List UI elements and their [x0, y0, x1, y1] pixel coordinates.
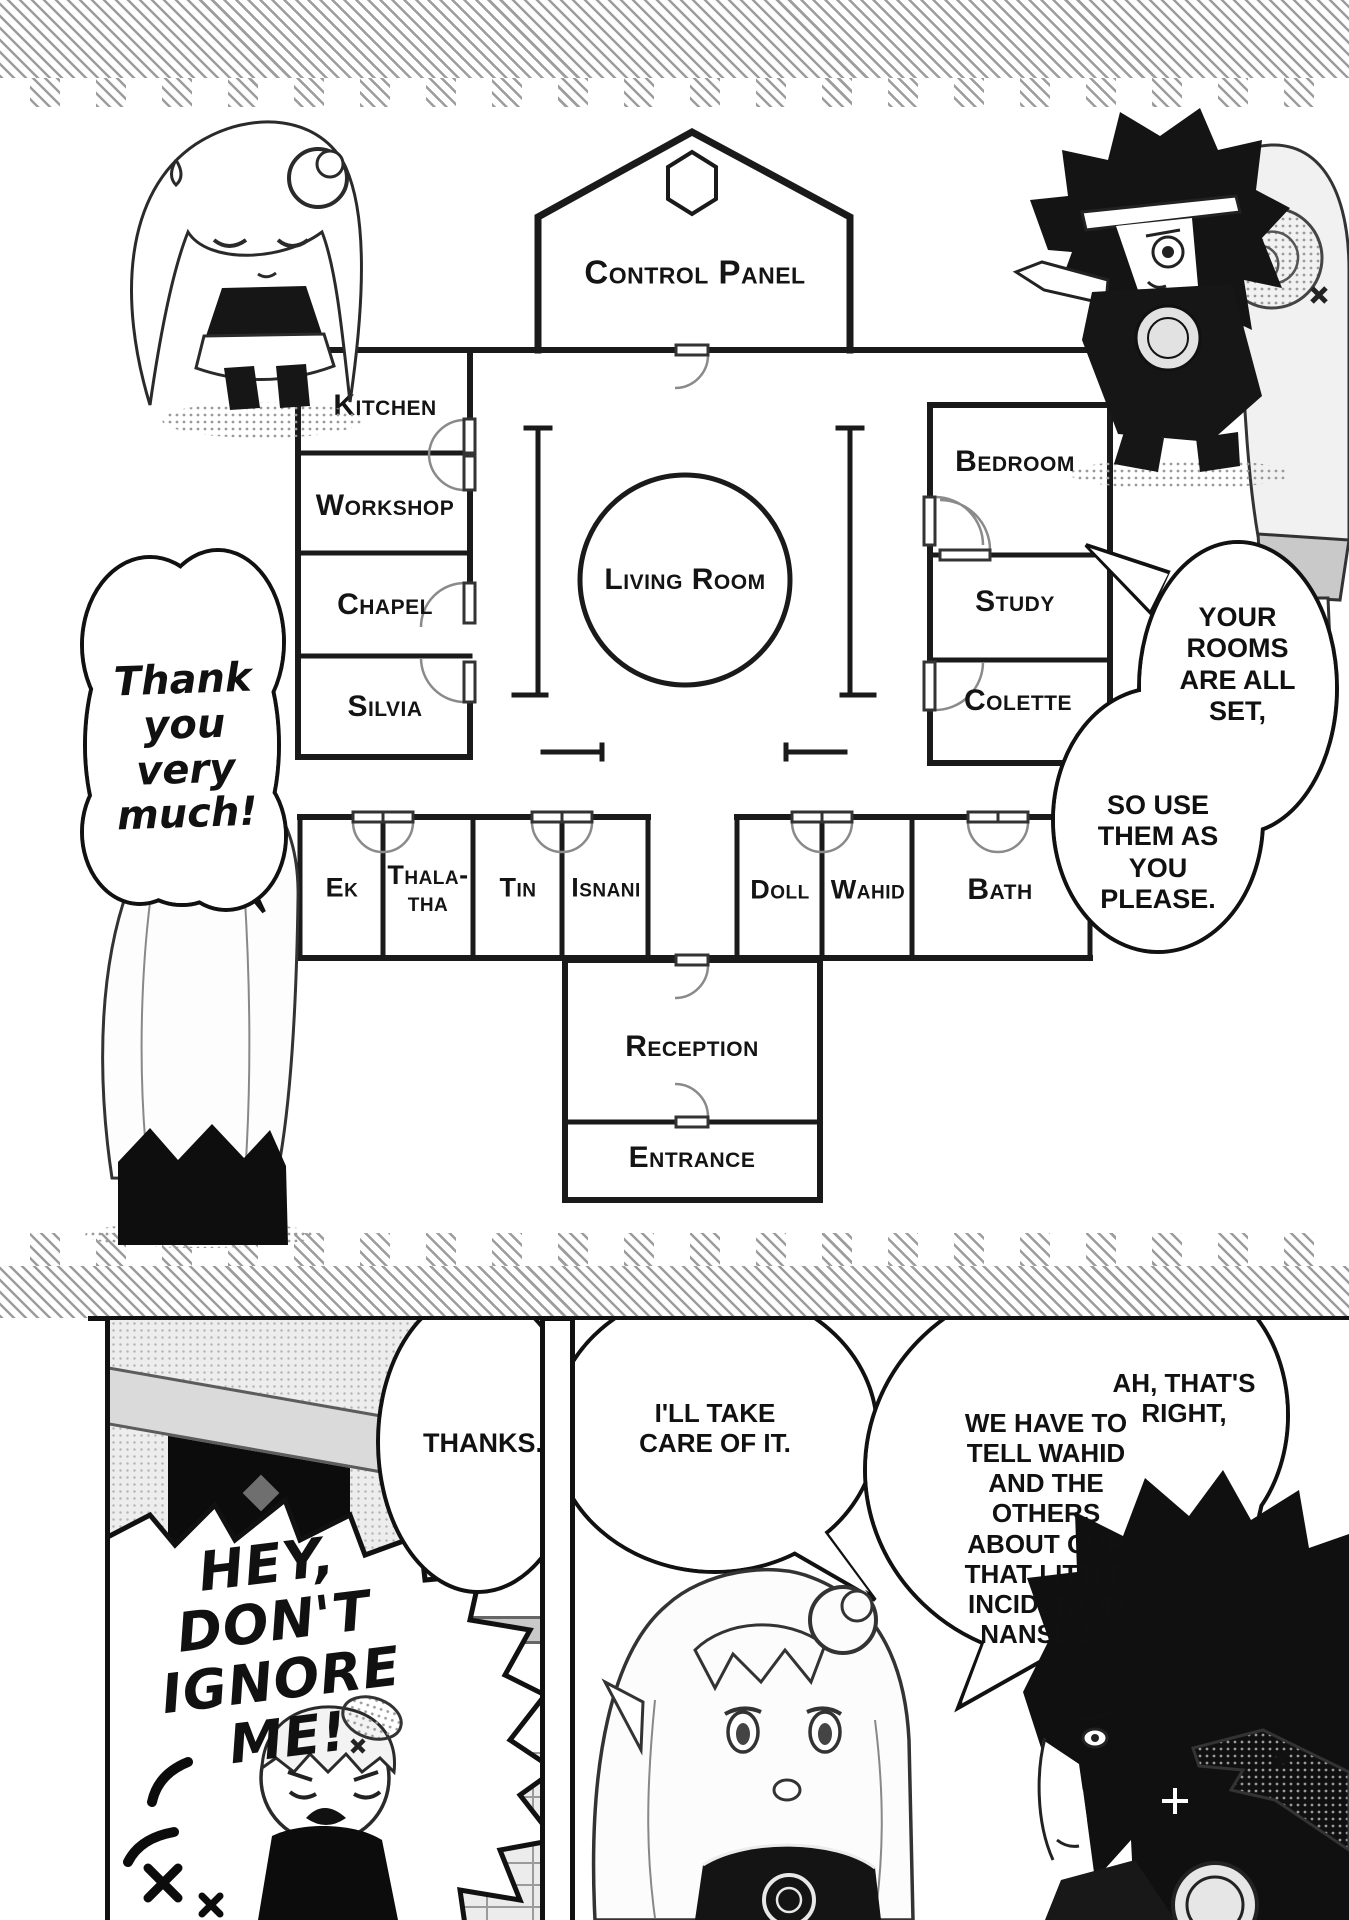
room-label-bath: Bath [967, 875, 1032, 905]
dialogue-take-care: I'LL TAKE CARE OF IT. [630, 1398, 800, 1458]
room-label-control-panel: Control Panel [584, 256, 805, 289]
hexagon-crest-icon [668, 152, 716, 214]
room-label-kitchen: Kitchen [333, 391, 436, 421]
room-label-wahid: Wahid [831, 877, 905, 904]
dialogue-thank-you: Thank you very much! [92, 655, 278, 840]
character-chibi-girl-back [1222, 145, 1349, 644]
sweat-drop-icon [172, 160, 182, 185]
open-mouth-icon [774, 1780, 800, 1800]
room-label-living-room: Living Room [604, 565, 765, 595]
room-label-entrance: Entrance [629, 1143, 756, 1173]
room-label-isnani: Isnani [571, 875, 641, 902]
speech-bubble-take-care [575, 1320, 877, 1600]
anger-mark-icon [1312, 288, 1326, 302]
room-label-colette: Colette [964, 686, 1072, 716]
dialogue-thanks: THANKS. [408, 1428, 545, 1459]
door-arcs [353, 355, 1028, 1117]
top-border-strip [0, 0, 1349, 78]
room-label-bedroom: Bedroom [955, 447, 1075, 477]
top-border-teeth [0, 78, 1349, 107]
room-label-workshop: Workshop [316, 491, 455, 521]
room-label-study: Study [975, 587, 1055, 617]
headband-icon [1082, 196, 1240, 230]
character-chibi-bowing-deep [85, 772, 315, 1248]
character-chibi-boy-pointing [1016, 108, 1290, 489]
panel-conversation: I'LL TAKE CARE OF IT. AH, THAT'S RIGHT, … [570, 1320, 1349, 1920]
room-label-chapel: Chapel [337, 590, 433, 620]
room-label-silvia: Silvia [347, 692, 422, 722]
character-silvia [594, 1570, 913, 1920]
room-label-tin: Tin [500, 875, 537, 902]
room-label-ek: Ek [326, 875, 359, 902]
dialogue-rooms-set: YOUR ROOMS ARE ALL SET, [1155, 602, 1320, 727]
dialogue-tell-wahid: WE HAVE TO TELL WAHID AND THE OTHERS ABO… [957, 1408, 1135, 1649]
rose-shawl-icon [1222, 208, 1322, 308]
room-label-thala-tha: Thala-tha [381, 862, 475, 916]
door-leaves [353, 345, 1028, 1127]
emblem-icon [1136, 306, 1200, 370]
room-label-reception: Reception [625, 1032, 759, 1062]
closed-eye-icon [278, 240, 308, 246]
crescent-moon-icon [289, 149, 347, 207]
bottom-border-strip [0, 1266, 1349, 1318]
dialogue-shout: HEY, DON'T IGNORE ME! [132, 1520, 423, 1784]
closed-eye-icon [214, 240, 246, 246]
panel-street-scene: THANKS. HEY, DON'T IGNORE ME! [105, 1320, 545, 1920]
manga-page: Control Panel Kitchen Workshop Chapel Si… [0, 0, 1349, 1920]
pointing-hand-icon [1016, 262, 1108, 304]
character-chibi-silvia-bowing [132, 122, 362, 438]
dialogue-use-them: SO USE THEM AS YOU PLEASE. [1068, 790, 1248, 915]
room-label-doll: Doll [750, 877, 810, 904]
bottom-border-teeth [0, 1233, 1349, 1266]
